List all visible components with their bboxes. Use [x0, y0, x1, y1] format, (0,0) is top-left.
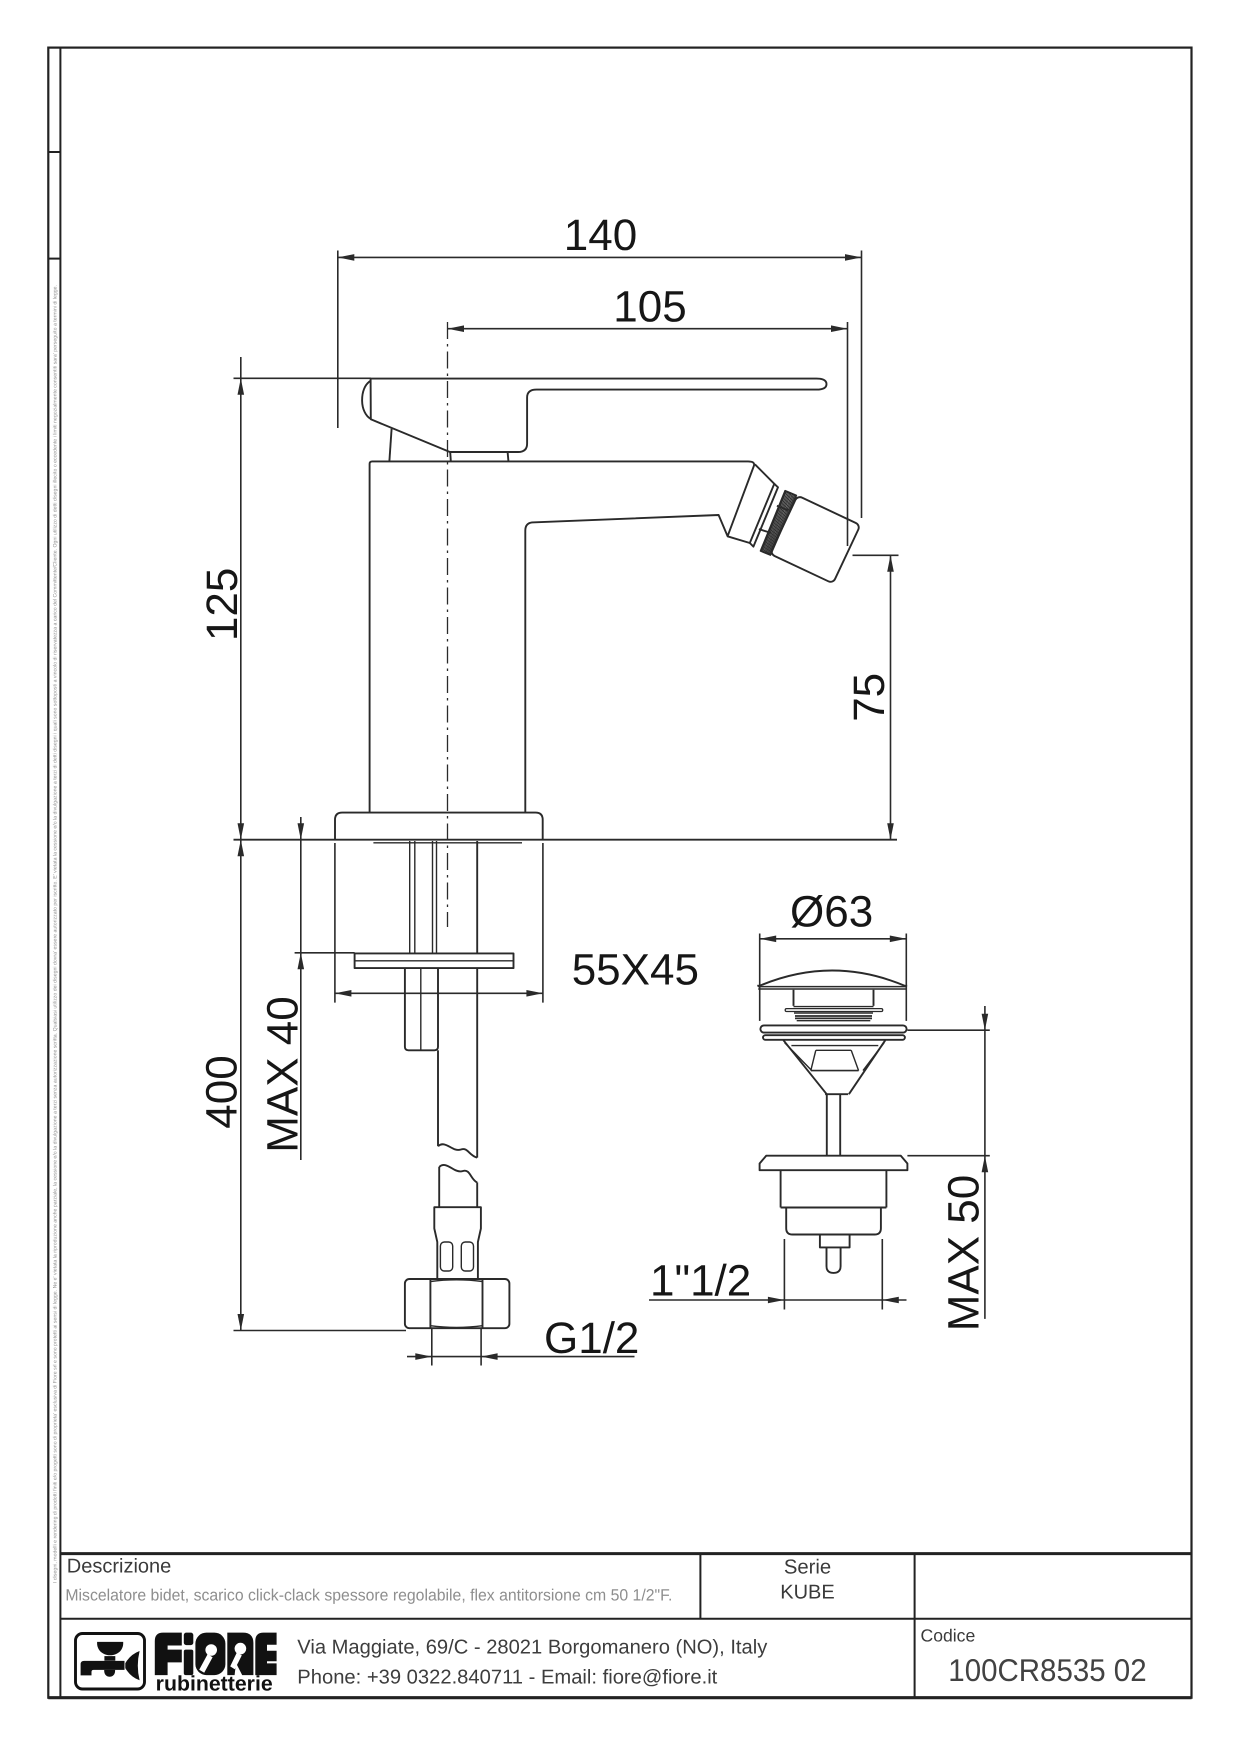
svg-text:55X45: 55X45 [572, 946, 699, 995]
svg-text:Descrizione: Descrizione [67, 1556, 171, 1578]
svg-text:105: 105 [613, 283, 686, 332]
svg-text:Via Maggiate, 69/C - 28021 Bor: Via Maggiate, 69/C - 28021 Borgomanero (… [297, 1636, 767, 1658]
svg-text:Serie: Serie [784, 1557, 831, 1579]
svg-text:Phone: +39 0322.840711 - Email: Phone: +39 0322.840711 - Email: fiore@fi… [297, 1667, 717, 1689]
svg-text:100CR8535 02: 100CR8535 02 [948, 1652, 1146, 1688]
svg-text:75: 75 [845, 673, 894, 722]
svg-text:I disegni, modelli e rendering: I disegni, modelli e rendering di prodot… [53, 285, 59, 1583]
svg-text:Ø63: Ø63 [790, 888, 873, 937]
svg-text:rubinetterie: rubinetterie [156, 1673, 273, 1696]
svg-text:1"1/2: 1"1/2 [650, 1256, 751, 1305]
svg-text:Miscelatore bidet, scarico cli: Miscelatore bidet, scarico click-clack s… [65, 1587, 672, 1605]
svg-text:MAX 40: MAX 40 [259, 996, 308, 1153]
svg-text:125: 125 [198, 568, 247, 641]
svg-text:G1/2: G1/2 [544, 1314, 639, 1363]
svg-text:400: 400 [197, 1055, 246, 1128]
svg-text:MAX 50: MAX 50 [940, 1175, 989, 1332]
svg-text:KUBE: KUBE [780, 1582, 834, 1604]
svg-text:Codice: Codice [921, 1626, 976, 1646]
svg-text:140: 140 [564, 211, 637, 260]
